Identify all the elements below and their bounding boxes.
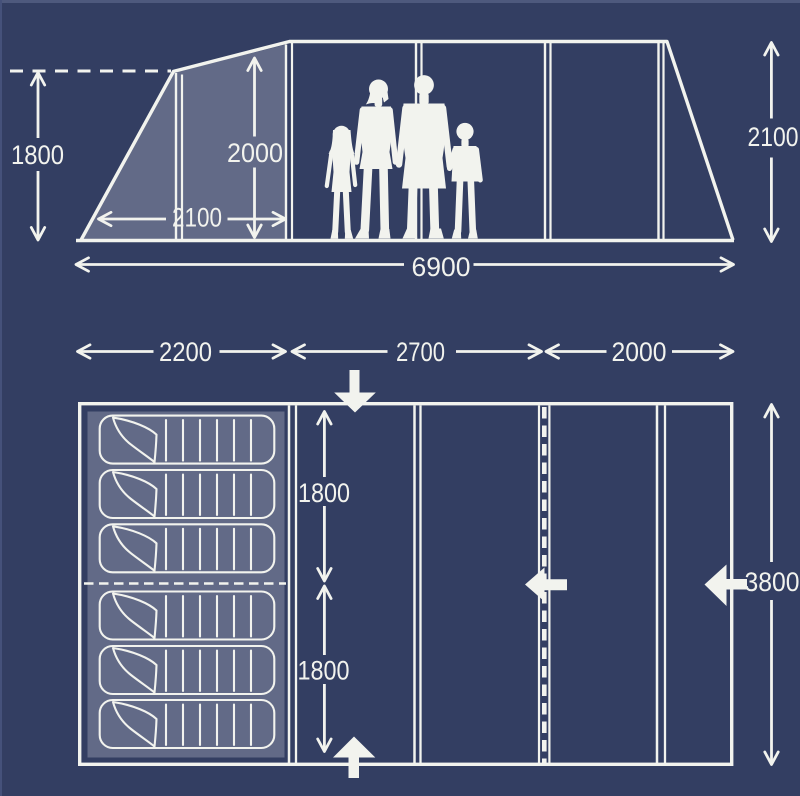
svg-text:2200: 2200 xyxy=(159,337,212,367)
svg-text:2100: 2100 xyxy=(172,203,222,233)
svg-text:2700: 2700 xyxy=(396,337,445,367)
svg-text:2000: 2000 xyxy=(227,138,283,168)
svg-text:2000: 2000 xyxy=(612,337,667,367)
svg-text:3800: 3800 xyxy=(745,567,800,597)
svg-text:1800: 1800 xyxy=(11,140,64,170)
svg-text:1800: 1800 xyxy=(298,656,350,686)
svg-text:6900: 6900 xyxy=(412,252,471,282)
svg-text:1800: 1800 xyxy=(298,478,350,508)
svg-text:2100: 2100 xyxy=(748,122,799,152)
